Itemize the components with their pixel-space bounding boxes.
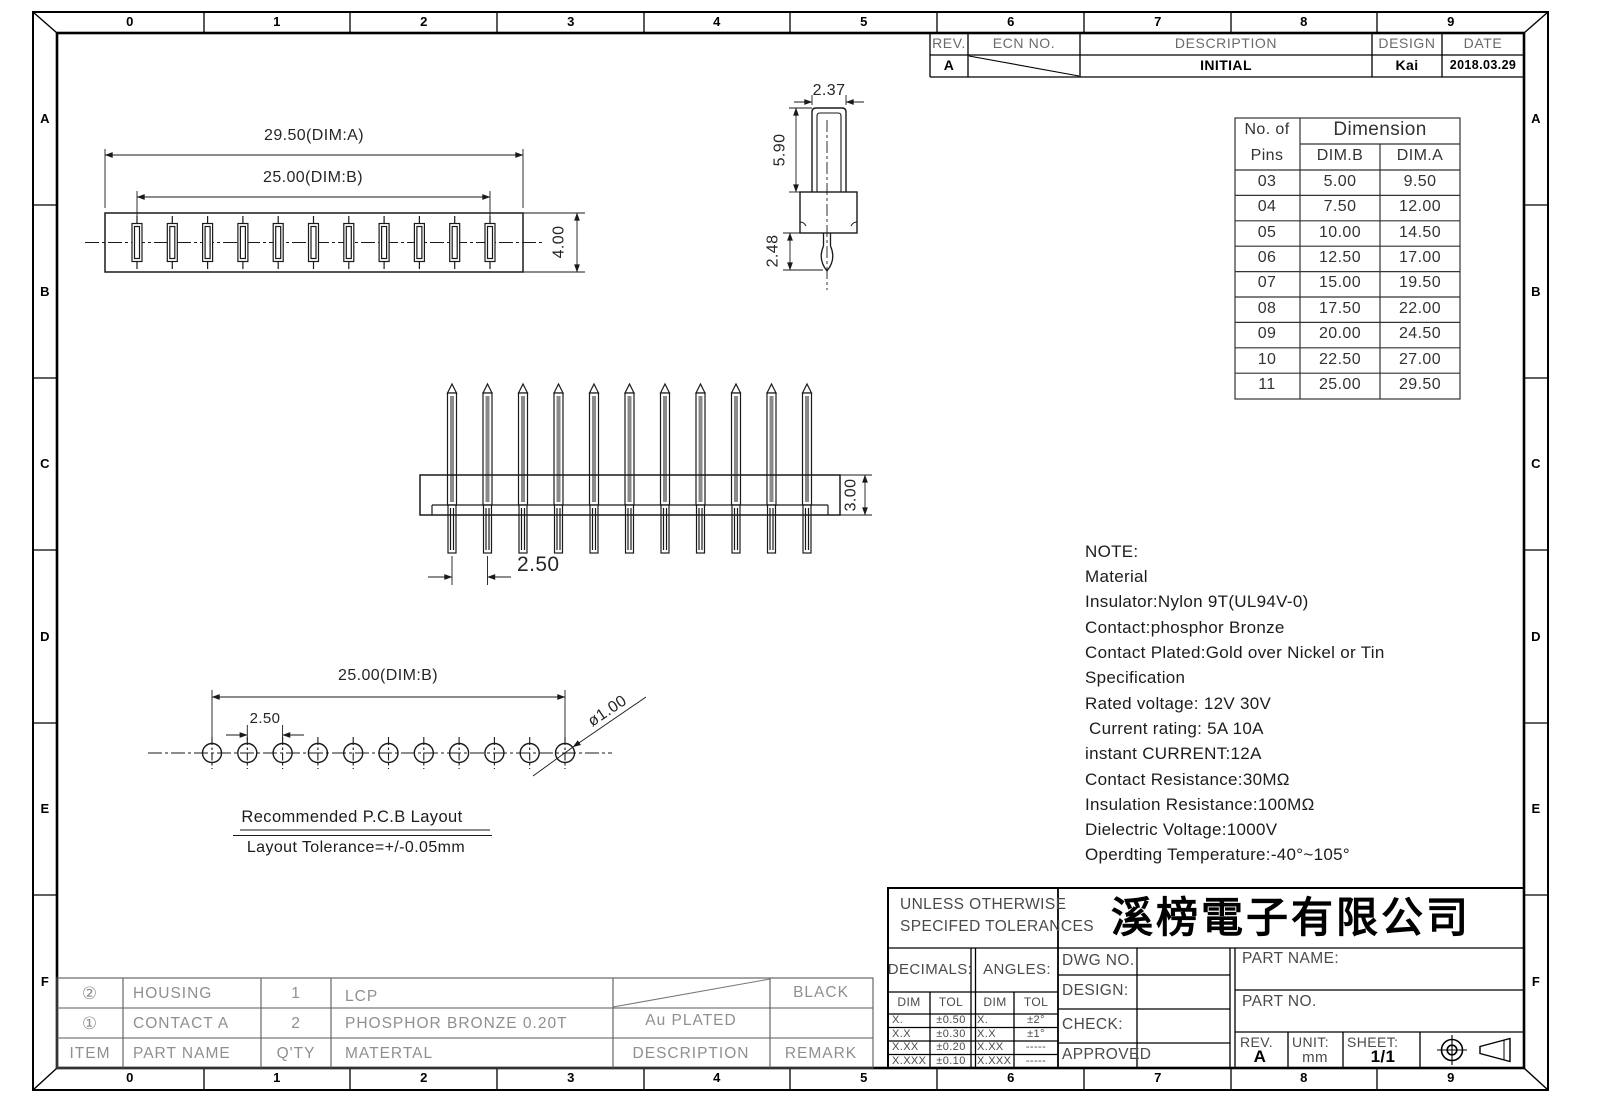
ruler-row-label: C xyxy=(1531,457,1541,471)
dim-table-cell: 04 xyxy=(1258,199,1277,216)
dim-table-header-dim-b: DIM.B xyxy=(1317,148,1363,165)
decimals-tol: ±0.30 xyxy=(936,1029,965,1041)
dim-table-cell: 06 xyxy=(1258,250,1277,267)
dim-table-cell: 22.00 xyxy=(1399,301,1441,318)
dim-table-header-dimension: Dimension xyxy=(1333,120,1426,140)
parts-header-remark: REMARK xyxy=(785,1046,857,1062)
note-line: Specification xyxy=(1085,669,1185,687)
decimals-dim: X.X xyxy=(892,1029,911,1041)
ruler-row-label: A xyxy=(40,112,50,126)
parts-row-qty: 1 xyxy=(291,986,301,1002)
rev-table-header-rev: REV. xyxy=(932,36,966,51)
dim-table-cell: 25.00 xyxy=(1319,377,1361,394)
rev-table-header-description: DESCRIPTION xyxy=(1175,36,1277,51)
note-line: Material xyxy=(1085,568,1148,586)
dim-table-cell: 29.50 xyxy=(1399,377,1441,394)
dim-label-pcb-span: 25.00(DIM:B) xyxy=(338,668,438,685)
dim-table-cell: 10 xyxy=(1258,352,1277,369)
engineering-drawing-sheet: 0 1 2 3 4 5 6 7 8 9 0 1 2 3 4 5 6 7 8 9 … xyxy=(0,0,1605,1100)
decimals-dim: X.XXX xyxy=(892,1056,926,1068)
sheet-value: 1/1 xyxy=(1371,1048,1396,1066)
note-line: instant CURRENT:12A xyxy=(1085,745,1262,763)
ruler-row-label: F xyxy=(1532,975,1540,989)
parts-header-material: MATERTAL xyxy=(345,1046,433,1062)
note-line: Operdting Temperature:-40°~105° xyxy=(1085,846,1350,864)
parts-header-description: DESCRIPTION xyxy=(633,1046,750,1062)
parts-row-name: CONTACT A xyxy=(133,1016,229,1032)
note-line: Contact:phosphor Bronze xyxy=(1085,619,1285,637)
dim-label-pin-length: 5.90 xyxy=(773,134,790,167)
ruler-row-label: C xyxy=(40,457,50,471)
note-line: NOTE: xyxy=(1085,543,1138,561)
note-line: Insulator:Nylon 9T(UL94V-0) xyxy=(1085,593,1309,611)
angles-tol-header: TOL xyxy=(1024,996,1048,1009)
decimals-dim: X. xyxy=(892,1015,903,1027)
dim-table-cell: 12.00 xyxy=(1399,199,1441,216)
part-no-label: PART NO. xyxy=(1242,994,1317,1010)
ruler-col-label: 2 xyxy=(420,15,428,29)
dim-table-cell: 14.50 xyxy=(1399,225,1441,242)
unit-label: UNIT: xyxy=(1292,1035,1329,1050)
dim-label-overall-width: 29.50(DIM:A) xyxy=(264,128,364,145)
angles-tol: ±1° xyxy=(1027,1029,1045,1041)
dim-table-header-dim-a: DIM.A xyxy=(1397,148,1443,165)
angles-tol: ----- xyxy=(1026,1056,1046,1068)
tolerance-heading-line2: SPECIFED TOLERANCES xyxy=(900,919,1094,935)
ruler-row-label: F xyxy=(41,975,49,989)
ruler-col-label: 7 xyxy=(1154,15,1162,29)
ruler-row-label: D xyxy=(1531,630,1541,644)
rev-date: 2018.03.29 xyxy=(1450,59,1517,72)
decimals-dim-header: DIM xyxy=(897,996,920,1009)
ruler-row-label: B xyxy=(1531,285,1541,299)
ruler-col-label: 4 xyxy=(713,15,721,29)
dim-label-housing-height: 3.00 xyxy=(844,479,861,512)
note-line: Contact Resistance:30MΩ xyxy=(1085,771,1290,789)
parts-row-material: LCP xyxy=(345,989,378,1005)
ruler-col-label: 1 xyxy=(273,15,281,29)
dim-label-pin-pitch: 2.50 xyxy=(517,554,559,576)
ruler-col-label: 0 xyxy=(126,1071,134,1085)
parts-header-name: PART NAME xyxy=(133,1046,231,1062)
decimals-tol: ±0.50 xyxy=(936,1015,965,1027)
dim-table-cell: 05 xyxy=(1258,225,1277,242)
decimals-dim: X.XX xyxy=(892,1042,919,1054)
dim-table-cell: 20.00 xyxy=(1319,326,1361,343)
pin-side-view-drawing xyxy=(783,95,864,290)
dim-table-cell: 9.50 xyxy=(1404,174,1437,191)
dim-table-cell: 5.00 xyxy=(1324,174,1357,191)
note-line: Insulation Resistance:100MΩ xyxy=(1085,796,1315,814)
decimals-tol: ±0.10 xyxy=(936,1056,965,1068)
rev-table-header-date: DATE xyxy=(1464,36,1503,51)
rev-value: A xyxy=(1254,1048,1267,1066)
ruler-col-label: 9 xyxy=(1447,1071,1455,1085)
company-name: 溪榜電子有限公司 xyxy=(1111,896,1471,940)
dim-label-pin-tail: 2.48 xyxy=(766,235,783,268)
dim-table-cell: 08 xyxy=(1258,301,1277,318)
parts-row-description: Au PLATED xyxy=(645,1013,736,1029)
ruler-row-label: E xyxy=(40,802,49,816)
parts-row-item: ① xyxy=(82,1015,98,1033)
angles-dim-header: DIM xyxy=(983,996,1006,1009)
dim-label-pin-width: 2.37 xyxy=(813,83,846,100)
rev-table-header-ecn: ECN NO. xyxy=(993,36,1056,51)
ruler-row-label: E xyxy=(1531,802,1540,816)
dim-table-header-pins-1: No. of xyxy=(1244,122,1289,139)
pcb-layout-tolerance: Layout Tolerance=+/-0.05mm xyxy=(247,840,465,857)
parts-row-qty: 2 xyxy=(291,1016,301,1032)
dim-table-cell: 09 xyxy=(1258,326,1277,343)
angles-dim: X. xyxy=(977,1015,988,1027)
parts-header-item: ITEM xyxy=(69,1046,110,1062)
ruler-row-label: A xyxy=(1531,112,1541,126)
ruler-col-label: 3 xyxy=(567,15,575,29)
parts-row-name: HOUSING xyxy=(133,986,212,1002)
angles-tol: ±2° xyxy=(1027,1015,1045,1027)
part-name-label: PART NAME: xyxy=(1242,951,1339,967)
decimals-label: DECIMALS: xyxy=(888,962,972,978)
angles-tol: ----- xyxy=(1026,1042,1046,1054)
approved-label: APPROVED xyxy=(1062,1047,1151,1063)
dim-label-housing-depth: 4.00 xyxy=(552,226,569,259)
dim-table-cell: 22.50 xyxy=(1319,352,1361,369)
ruler-col-label: 4 xyxy=(713,1071,721,1085)
ruler-col-label: 0 xyxy=(126,15,134,29)
decimals-tol-header: TOL xyxy=(939,996,963,1009)
ruler-col-label: 7 xyxy=(1154,1071,1162,1085)
unit-value: mm xyxy=(1302,1050,1328,1066)
ruler-col-label: 5 xyxy=(860,1071,868,1085)
front-view-drawing xyxy=(420,384,872,585)
check-label: CHECK: xyxy=(1062,1017,1123,1033)
dim-table-cell: 24.50 xyxy=(1399,326,1441,343)
angles-dim: X.X xyxy=(977,1029,996,1041)
rev-table-header-design: DESIGN xyxy=(1378,36,1435,51)
design-label: DESIGN: xyxy=(1062,983,1129,999)
dim-table-cell: 07 xyxy=(1258,275,1277,292)
ruler-col-label: 8 xyxy=(1300,15,1308,29)
angles-label: ANGLES: xyxy=(983,962,1051,978)
dim-table-cell: 15.00 xyxy=(1319,275,1361,292)
dim-table-cell: 7.50 xyxy=(1324,199,1357,216)
ruler-col-label: 2 xyxy=(420,1071,428,1085)
dim-table-cell: 27.00 xyxy=(1399,352,1441,369)
dwg-no-label: DWG NO. xyxy=(1062,953,1135,969)
rev-design: Kai xyxy=(1396,58,1419,73)
dim-table-cell: 10.00 xyxy=(1319,225,1361,242)
note-line: Rated voltage: 12V 30V xyxy=(1085,695,1271,713)
angles-dim: X.XXX xyxy=(977,1056,1011,1068)
dim-label-pin-span: 25.00(DIM:B) xyxy=(263,170,363,187)
ruler-col-label: 1 xyxy=(273,1071,281,1085)
angles-dim: X.XX xyxy=(977,1042,1004,1054)
ruler-row-label: D xyxy=(40,630,50,644)
parts-row-remark: BLACK xyxy=(793,985,849,1001)
ruler-row-label: B xyxy=(40,285,50,299)
ruler-col-label: 8 xyxy=(1300,1071,1308,1085)
ruler-col-label: 6 xyxy=(1007,15,1015,29)
tolerance-heading-line1: UNLESS OTHERWISE xyxy=(900,897,1066,913)
ruler-col-label: 3 xyxy=(567,1071,575,1085)
dim-table-cell: 03 xyxy=(1258,174,1277,191)
dim-table-cell: 12.50 xyxy=(1319,250,1361,267)
dim-label-pcb-pitch: 2.50 xyxy=(250,711,281,727)
note-line: Current rating: 5A 10A xyxy=(1089,720,1264,738)
note-line: Dielectric Voltage:1000V xyxy=(1085,821,1277,839)
parts-header-qty: Q'TY xyxy=(277,1046,316,1062)
ruler-col-label: 5 xyxy=(860,15,868,29)
projection-symbol xyxy=(1437,1035,1510,1065)
decimals-tol: ±0.20 xyxy=(936,1042,965,1054)
dim-table-cell: 17.00 xyxy=(1399,250,1441,267)
top-view-drawing xyxy=(85,149,585,272)
dim-table-cell: 19.50 xyxy=(1399,275,1441,292)
parts-row-material: PHOSPHOR BRONZE 0.20T xyxy=(345,1016,568,1032)
rev-description: INITIAL xyxy=(1200,58,1252,73)
note-line: Contact Plated:Gold over Nickel or Tin xyxy=(1085,644,1385,662)
dim-table-cell: 17.50 xyxy=(1319,301,1361,318)
parts-row-item: ② xyxy=(82,985,98,1003)
ruler-col-label: 9 xyxy=(1447,15,1455,29)
rev-value: A xyxy=(944,58,955,73)
pcb-layout-title: Recommended P.C.B Layout xyxy=(241,809,462,826)
dim-table-header-pins-2: Pins xyxy=(1251,148,1284,165)
ruler-col-label: 6 xyxy=(1007,1071,1015,1085)
dim-table-cell: 11 xyxy=(1258,377,1275,394)
